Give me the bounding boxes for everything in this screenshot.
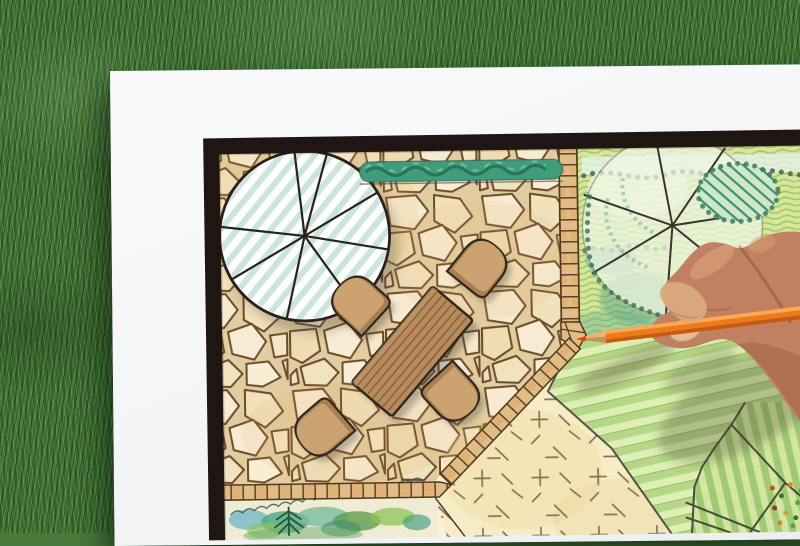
hand-and-pencil: Designer's hand with orange colored penc… [536, 226, 800, 536]
pencil-lead-tip [576, 336, 586, 342]
photo-scene: { "scene": { "caption": "Hand holding an… [0, 0, 800, 533]
